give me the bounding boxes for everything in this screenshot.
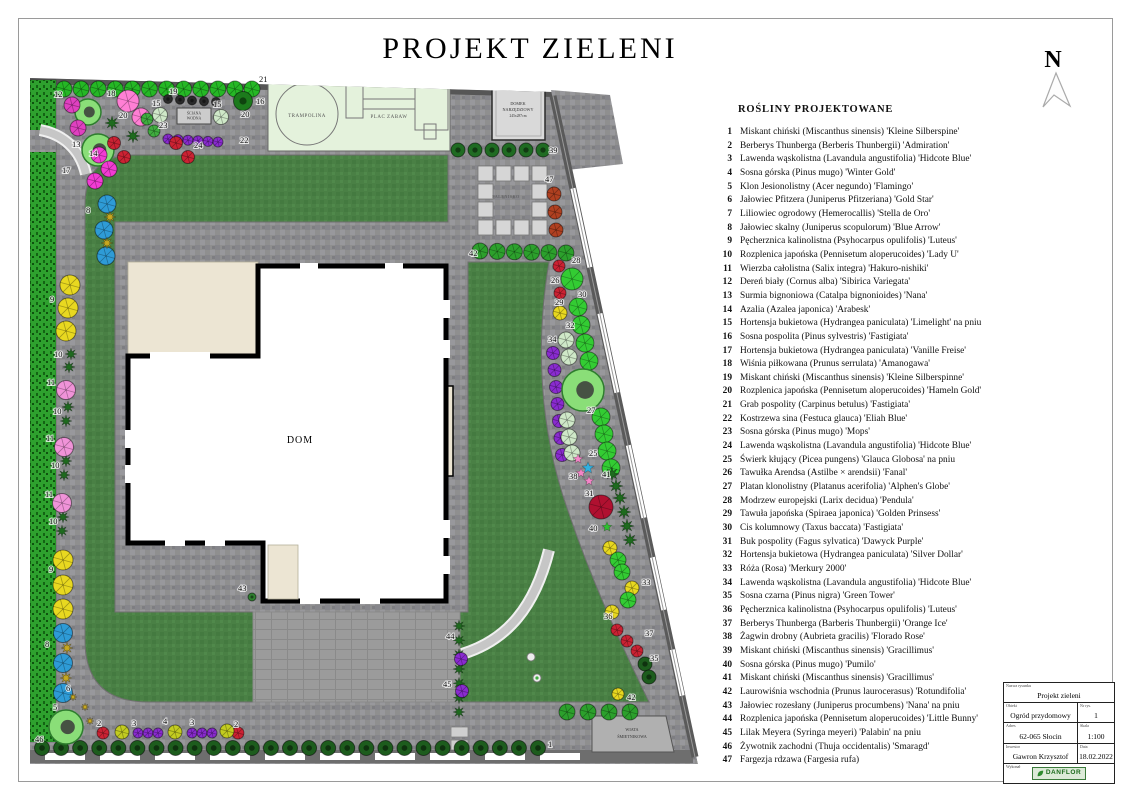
plant-number-label: 10 (53, 406, 62, 416)
plant-symbol (115, 725, 129, 739)
plant-number-label: 9 (49, 564, 53, 574)
legend-item: 19Miskant chiński (Miscanthus sinensis) … (712, 372, 1118, 386)
legend-item-text: Sosna pospolita (Pinus sylvestris) 'Fast… (740, 331, 908, 345)
north-label: N (1044, 47, 1062, 73)
legend-item: 5Klon Jesionolistny (Acer negundo) 'Flam… (712, 181, 1118, 195)
plant-number-label: 18 (107, 88, 116, 98)
plant-symbol (57, 381, 76, 400)
tool-shed (492, 86, 545, 140)
legend-item-number: 11 (712, 263, 732, 277)
legend-item-text: Miskant chiński (Miscanthus sinensis) 'G… (740, 645, 934, 659)
logo-text: DANFLOR (1046, 769, 1081, 776)
plant-number-label: 43 (238, 583, 247, 593)
legend-item: 12Dereń biały (Cornus alba) 'Sibirica Va… (712, 276, 1118, 290)
legend-item-text: Grab pospolity (Carpinus betulus) 'Fasti… (740, 399, 910, 413)
danflor-logo: DANFLOR (1032, 767, 1086, 780)
plant-symbol (73, 741, 88, 756)
plant-number-label: 42 (469, 248, 478, 258)
legend-item-text: Modrzew europejski (Larix decidua) 'Pend… (740, 495, 914, 509)
legend-item-number: 17 (712, 345, 732, 359)
legend-item-number: 39 (712, 645, 732, 659)
garden-ball (527, 653, 535, 661)
plant-symbol (561, 429, 577, 445)
plant-number-label: 26 (551, 275, 560, 285)
address-label: Adres (1006, 723, 1016, 728)
plant-symbol (244, 741, 259, 756)
plant-number-label: 1 (548, 739, 552, 749)
legend-item-text: Pęcherznica kalinolistna (Psyhocarpus op… (740, 235, 957, 249)
plant-number-label: 44 (446, 631, 455, 641)
legend-item-text: Rozplenica japońska (Pennisetum aloperuc… (740, 385, 981, 399)
legend-item-number: 45 (712, 727, 732, 741)
legend-item: 22Kostrzewa sina (Festuca glauca) 'Eliah… (712, 413, 1118, 427)
plant-symbol (73, 81, 89, 97)
plant-symbol (56, 525, 68, 537)
plant-symbol (90, 81, 106, 97)
plant-symbol (456, 685, 469, 698)
legend-item: 25Świerk kłujący (Picea pungens) 'Glauca… (712, 454, 1118, 468)
plant-symbol (524, 244, 540, 260)
plant-symbol (60, 275, 80, 295)
tool-shed-label: NARZĘDZIOWY (503, 107, 534, 112)
sheet-number-label: Nr rys. (1080, 703, 1091, 708)
legend-item-number: 46 (712, 741, 732, 755)
legend-item-number: 44 (712, 713, 732, 727)
plant-symbol (558, 332, 574, 348)
plant-symbol (187, 741, 202, 756)
plant-number-label: 32 (566, 320, 575, 330)
plant-number-label: 11 (46, 433, 54, 443)
plant-symbol (60, 415, 72, 427)
plant-symbol (502, 143, 516, 157)
entry-terrace (128, 262, 258, 354)
legend-item-text: Sosna czarna (Pinus nigra) 'Green Tower' (740, 590, 895, 604)
plant-symbol (302, 741, 317, 756)
legend-item-text: Cis kolumnowy (Taxus baccata) 'Fastigiat… (740, 522, 903, 536)
legend-item: 7Liliowiec ogrodowy (Hemerocallis) 'Stel… (712, 208, 1118, 222)
plant-symbol (547, 347, 560, 360)
legend-item-number: 9 (712, 235, 732, 249)
plant-number-label: 22 (240, 135, 249, 145)
plant-symbol (451, 143, 465, 157)
plant-number-label: 8 (86, 205, 90, 215)
plant-legend: ROŚLINY PROJEKTOWANE 1Miskant chiński (M… (712, 104, 1118, 768)
legend-item-text: Azalia (Azalea japonica) 'Arabesk' (740, 304, 870, 318)
plant-symbol (168, 741, 183, 756)
plant-symbol (559, 412, 575, 428)
plant-number-label: 15 (213, 99, 222, 109)
legend-item-text: Sosna górska (Pinus mugo) 'Winter Gold' (740, 167, 895, 181)
plant-number-label: 39 (549, 145, 558, 155)
legend-item: 40Sosna górska (Pinus mugo) 'Pumilo' (712, 659, 1118, 673)
legend-item-text: Liliowiec ogrodowy (Hemerocallis) 'Stell… (740, 208, 930, 222)
bin-shelter-label: WIATA (625, 727, 638, 732)
legend-item-text: Tawułka Arendsa (Astilbe × arendsii) 'Fa… (740, 467, 907, 481)
plant-number-label: 6 (66, 683, 70, 693)
plant-symbol (485, 143, 499, 157)
legend-item-number: 6 (712, 194, 732, 208)
legend-item-number: 13 (712, 290, 732, 304)
plant-symbol (210, 81, 226, 97)
legend-item-text: Jałowiec Pfitzera (Juniperus Pfitzeriana… (740, 194, 934, 208)
plant-number-label: 25 (589, 448, 598, 458)
plant-symbol (631, 645, 643, 657)
legend-item-text: Miskant chiński (Miscanthus sinensis) 'G… (740, 672, 934, 686)
plant-number-label: 47 (545, 174, 554, 184)
plant-number-label: 2 (234, 719, 238, 729)
plant-symbol (70, 120, 86, 136)
date-value: 18.02.2022 (1078, 752, 1114, 763)
plant-symbol (213, 137, 223, 147)
legend-item-number: 19 (712, 372, 732, 386)
plant-symbol (553, 306, 567, 320)
plant-symbol (580, 704, 596, 720)
plant-number-label: 8 (45, 639, 49, 649)
house-label: DOM (287, 435, 313, 446)
plant-number-label: 42 (627, 692, 636, 702)
legend-item-text: Fargezja rdzawa (Fargesia rufa) (740, 754, 859, 768)
legend-item-text: Lilak Meyera (Syringa meyeri) 'Palabin' … (740, 727, 921, 741)
plant-symbol (562, 369, 604, 411)
legend-item: 1Miskant chiński (Miscanthus sinensis) '… (712, 126, 1118, 140)
legend-item-text: Hortensja bukietowa (Hydrangea paniculat… (740, 549, 963, 563)
legend-item-number: 47 (712, 754, 732, 768)
plant-number-label: 38 (569, 471, 578, 481)
plant-number-label: 46 (35, 734, 44, 744)
legend-item-number: 3 (712, 153, 732, 167)
plant-number-label: 11 (47, 377, 55, 387)
legend-item-text: Wierzba całolistna (Salix integra) 'Haku… (740, 263, 928, 277)
legend-item: 33Róża (Rosa) 'Merkury 2000' (712, 563, 1118, 577)
plant-symbol (101, 161, 117, 177)
plant-symbol (141, 81, 157, 97)
legend-item-number: 24 (712, 440, 732, 454)
legend-item-text: Miskant chiński (Miscanthus sinensis) 'K… (740, 372, 964, 386)
plant-symbol (207, 728, 217, 738)
plant-number-label: 27 (587, 405, 596, 415)
legend-item-number: 35 (712, 590, 732, 604)
legend-item-text: Klon Jesionolistny (Acer negundo) 'Flami… (740, 181, 913, 195)
plant-symbol (81, 703, 89, 711)
legend-item-text: Jałowiec rozesłany (Juniperus procumbens… (740, 700, 959, 714)
leaf-icon (1036, 769, 1044, 777)
legend-item-number: 7 (712, 208, 732, 222)
legend-item-number: 31 (712, 536, 732, 550)
sheet-number-value: 1 (1078, 711, 1114, 722)
plant-symbol (187, 728, 197, 738)
legend-item: 13Surmia bignoniowa (Catalpa bignonioide… (712, 290, 1118, 304)
legend-item-number: 29 (712, 508, 732, 522)
plant-symbol (168, 725, 182, 739)
scale-label: Skala (1080, 723, 1089, 728)
plant-symbol (133, 728, 143, 738)
plant-number-label: 34 (548, 334, 557, 344)
title-block-row-name: Nazwa rysunku Projekt zieleni (1004, 683, 1114, 703)
investor-value: Gawron Krzysztof (1004, 752, 1077, 763)
legend-item-number: 16 (712, 331, 732, 345)
plant-symbol (225, 741, 240, 756)
plant-number-label: 15 (152, 98, 161, 108)
plant-number-label: 21 (259, 74, 268, 84)
legend-item-number: 23 (712, 426, 732, 440)
plant-number-label: 10 (49, 516, 58, 526)
legend-item-number: 27 (712, 481, 732, 495)
house-lower-pad (268, 545, 298, 599)
plant-number-label: 12 (54, 89, 63, 99)
legend-item: 29Tawuła japońska (Spiraea japonica) 'Go… (712, 508, 1118, 522)
plant-symbol (559, 704, 575, 720)
plant-symbol (153, 728, 163, 738)
north-arrow-icon (1043, 73, 1070, 107)
legend-item-text: Sosna górska (Pinus mugo) 'Mops' (740, 426, 870, 440)
plant-number-label: 17 (62, 165, 71, 175)
plant-symbol (63, 361, 75, 373)
legend-item-text: Kostrzewa sina (Festuca glauca) 'Eliah B… (740, 413, 907, 427)
legend-item-number: 36 (712, 604, 732, 618)
plant-number-label: 30 (578, 289, 587, 299)
plant-symbol (56, 321, 76, 341)
plant-symbol (108, 137, 121, 150)
legend-item: 32Hortensja bukietowa (Hydrangea panicul… (712, 549, 1118, 563)
plant-number-label: 11 (45, 489, 53, 499)
legend-item: 27Platan klonolistny (Platanus acerifoli… (712, 481, 1118, 495)
legend-item-text: Berberys Thunberga (Barberis Thunbergii)… (740, 618, 948, 632)
plant-symbol (609, 479, 623, 493)
legend-item-number: 15 (712, 317, 732, 331)
legend-item-text: Świerk kłujący (Picea pungens) 'Glauca G… (740, 454, 955, 468)
plant-symbol (65, 348, 77, 360)
bin-shelter-label: ŚMIETNIKOWA (617, 734, 647, 739)
plant-symbol (614, 564, 630, 580)
plant-symbol (60, 455, 72, 467)
plant-symbol (117, 90, 139, 112)
plant-symbol (623, 533, 637, 547)
plant-symbol (214, 110, 229, 125)
plant-symbol (130, 741, 145, 756)
plant-symbol (248, 593, 256, 601)
date-label: Data (1080, 744, 1088, 749)
plant-symbol (53, 494, 72, 513)
plant-symbol (220, 724, 234, 738)
page-title: PROJEKT ZIELENI (382, 32, 677, 65)
plant-symbol (453, 620, 465, 632)
plant-number-label: 36 (604, 611, 613, 621)
playground-label: PLAC ZABAW (371, 115, 408, 120)
plant-symbol (141, 113, 153, 125)
plant-number-label: 40 (589, 523, 598, 533)
legend-item-text: Surmia bignoniowa (Catalpa bignonioides)… (740, 290, 927, 304)
scale-value: 1:100 (1078, 732, 1114, 743)
plant-symbol (531, 741, 546, 756)
plant-symbol (620, 519, 634, 533)
plant-number-label: 33 (642, 577, 651, 587)
plant-symbol (111, 741, 126, 756)
plant-symbol (548, 205, 562, 219)
plant-number-label: 3 (190, 717, 194, 727)
legend-item-number: 25 (712, 454, 732, 468)
plant-symbol (621, 635, 633, 647)
water-wall-label: ŚCIANA (187, 111, 201, 116)
legend-item: 16Sosna pospolita (Pinus sylvestris) 'Fa… (712, 331, 1118, 345)
legend-item: 35Sosna czarna (Pinus nigra) 'Green Towe… (712, 590, 1118, 604)
plant-symbol (197, 728, 207, 738)
plant-symbol (53, 599, 73, 619)
plant-symbol (541, 245, 557, 261)
legend-item: 18Wiśnia piłkowana (Prunus serrulata) 'A… (712, 358, 1118, 372)
plant-symbol (561, 268, 583, 290)
plant-symbol (53, 575, 73, 595)
legend-item-number: 2 (712, 140, 732, 154)
legend-item-text: Żagwin drobny (Aubrieta gracilis) 'Flora… (740, 631, 925, 645)
plant-symbol (572, 316, 590, 334)
plant-number-label: 24 (194, 140, 203, 150)
plant-symbol (58, 469, 70, 481)
plant-number-label: 16 (256, 96, 265, 106)
legend-item-number: 5 (712, 181, 732, 195)
plant-symbol (548, 364, 561, 377)
legend-item-text: Tawuła japońska (Spiraea japonica) 'Gold… (740, 508, 940, 522)
plant-symbol (416, 741, 431, 756)
plant-symbol (97, 727, 109, 739)
legend-item-text: Miskant chiński (Miscanthus sinensis) 'K… (740, 126, 959, 140)
plant-symbol (549, 223, 563, 237)
plant-symbol (118, 151, 131, 164)
plant-symbol (553, 260, 565, 272)
legend-item-text: Rozplenica japońska (Pennisetum aloperuc… (740, 713, 978, 727)
plant-symbol (547, 187, 561, 201)
legend-item-number: 43 (712, 700, 732, 714)
plant-symbol (55, 438, 74, 457)
title-block-row-madeby: Wykonał DANFLOR (1004, 764, 1114, 783)
plant-symbol (206, 741, 221, 756)
legend-item-text: Platan klonolistny (Platanus acerifolia)… (740, 481, 950, 495)
legend-item-number: 40 (712, 659, 732, 673)
plant-symbol (612, 688, 624, 700)
plant-symbol (340, 741, 355, 756)
plant-number-label: 19 (169, 86, 178, 96)
plant-symbol (97, 247, 115, 265)
legend-item-number: 32 (712, 549, 732, 563)
made-by-label: Wykonał (1006, 764, 1020, 769)
plant-number-label: 3 (132, 718, 136, 728)
plant-number-label: 41 (602, 469, 611, 479)
legend-item: 2Berberys Thunberga (Berberis Thunbergii… (712, 140, 1118, 154)
plant-symbol (183, 135, 193, 145)
plant-symbol (598, 442, 616, 460)
legend-item-number: 34 (712, 577, 732, 591)
legend-item: 24Lawenda wąskolistna (Lavandula angusti… (712, 440, 1118, 454)
plant-symbol (234, 92, 253, 111)
legend-item: 15Hortensja bukietowa (Hydrangea panicul… (712, 317, 1118, 331)
legend-item-number: 38 (712, 631, 732, 645)
plant-symbol (87, 173, 103, 189)
legend-item-number: 14 (712, 304, 732, 318)
legend-item: 26Tawułka Arendsa (Astilbe × arendsii) '… (712, 467, 1118, 481)
legend-item: 11Wierzba całolistna (Salix integra) 'Ha… (712, 263, 1118, 277)
drawing-name-label: Nazwa rysunku (1006, 683, 1031, 688)
legend-item-number: 1 (712, 126, 732, 140)
legend-item-text: Buk pospolity (Fagus sylvatica) 'Dawyck … (740, 536, 923, 550)
plant-symbol (359, 741, 374, 756)
plant-number-label: 2 (97, 718, 101, 728)
legend-item-text: Dereń biały (Cornus alba) 'Sibirica Vari… (740, 276, 910, 290)
legend-item: 28Modrzew europejski (Larix decidua) 'Pe… (712, 495, 1118, 509)
tool-shed-label: DOMEK (510, 101, 525, 106)
plant-symbol (58, 298, 78, 318)
title-block-row-object: Obiekt Ogród przydomowy Nr rys. 1 (1004, 703, 1114, 723)
plant-symbol (143, 728, 153, 738)
plant-symbol (49, 710, 83, 744)
plant-symbol (511, 741, 526, 756)
legend-item: 31Buk pospolity (Fagus sylvatica) 'Dawyc… (712, 536, 1118, 550)
plant-symbol (601, 704, 617, 720)
plant-symbol (617, 505, 631, 519)
plant-number-label: 23 (159, 120, 168, 130)
patio-terrace (253, 612, 460, 702)
legend-item-text: Hortensja bukietowa (Hydrangea paniculat… (740, 317, 981, 331)
legend-item: 23Sosna górska (Pinus mugo) 'Mops' (712, 426, 1118, 440)
legend-item-text: Lawenda wąskolistna (Lavandula angustifo… (740, 440, 971, 454)
plant-symbol (86, 717, 94, 725)
plant-symbol (61, 642, 73, 654)
legend-item-number: 41 (712, 672, 732, 686)
legend-item-number: 28 (712, 495, 732, 509)
legend-item-text: Pęcherznica kalinolistna (Psyhocarpus op… (740, 604, 957, 618)
plant-number-label: 10 (54, 349, 63, 359)
plant-symbol (321, 741, 336, 756)
legend-item: 34Lawenda wąskolistna (Lavandula angusti… (712, 577, 1118, 591)
legend-item-number: 12 (712, 276, 732, 290)
water-wall-label: WODNA (187, 117, 202, 121)
trampoline-label: TRAMPOLINA (288, 114, 326, 119)
plant-symbol (104, 211, 116, 223)
legend-item: 36Pęcherznica kalinolistna (Psyhocarpus … (712, 604, 1118, 618)
plant-symbol (576, 334, 594, 352)
legend-item-text: Berberys Thunberga (Berberis Thunbergii)… (740, 140, 949, 154)
plant-number-label: 9 (50, 294, 54, 304)
plant-symbol (69, 693, 77, 701)
plant-symbol (642, 670, 656, 684)
plant-symbol (54, 624, 73, 643)
plant-symbol (620, 592, 636, 608)
legend-item-text: Jałowiec skalny (Juniperus scopulorum) '… (740, 222, 940, 236)
plant-symbol (263, 741, 278, 756)
plant-number-label: 31 (585, 488, 594, 498)
garden-design-sheet: { "page": { "title": "PROJEKT ZIELENI", … (0, 0, 1131, 800)
plant-symbol (170, 137, 183, 150)
drawing-name-value: Projekt zieleni (1004, 691, 1114, 702)
plant-number-label: 29 (555, 297, 564, 307)
plant-symbol (569, 298, 587, 316)
plant-symbol (95, 221, 113, 239)
legend-item-text: Lawenda wąskolistna (Lavandula angustifo… (740, 577, 971, 591)
legend-item: 6Jałowiec Pfitzera (Juniperus Pfitzerian… (712, 194, 1118, 208)
legend-item-text: Laurowiśnia wschodnia (Prunus lauroceras… (740, 686, 966, 700)
legend-item-number: 42 (712, 686, 732, 700)
legend-item: 39Miskant chiński (Miscanthus sinensis) … (712, 645, 1118, 659)
investor-label: Inwestor (1006, 744, 1020, 749)
plant-symbol (468, 143, 482, 157)
legend-item-text: Wiśnia piłkowana (Prunus serrulata) 'Ama… (740, 358, 930, 372)
legend-item-text: Lawenda wąskolistna (Lavandula angustifo… (740, 153, 971, 167)
plant-symbol (54, 654, 73, 673)
plant-symbol (188, 96, 197, 105)
plant-symbol (580, 352, 598, 370)
legend-item-number: 33 (712, 563, 732, 577)
title-block: Nazwa rysunku Projekt zieleni Obiekt Ogr… (1003, 682, 1115, 784)
plant-symbol (453, 634, 465, 646)
legend-item-number: 26 (712, 467, 732, 481)
